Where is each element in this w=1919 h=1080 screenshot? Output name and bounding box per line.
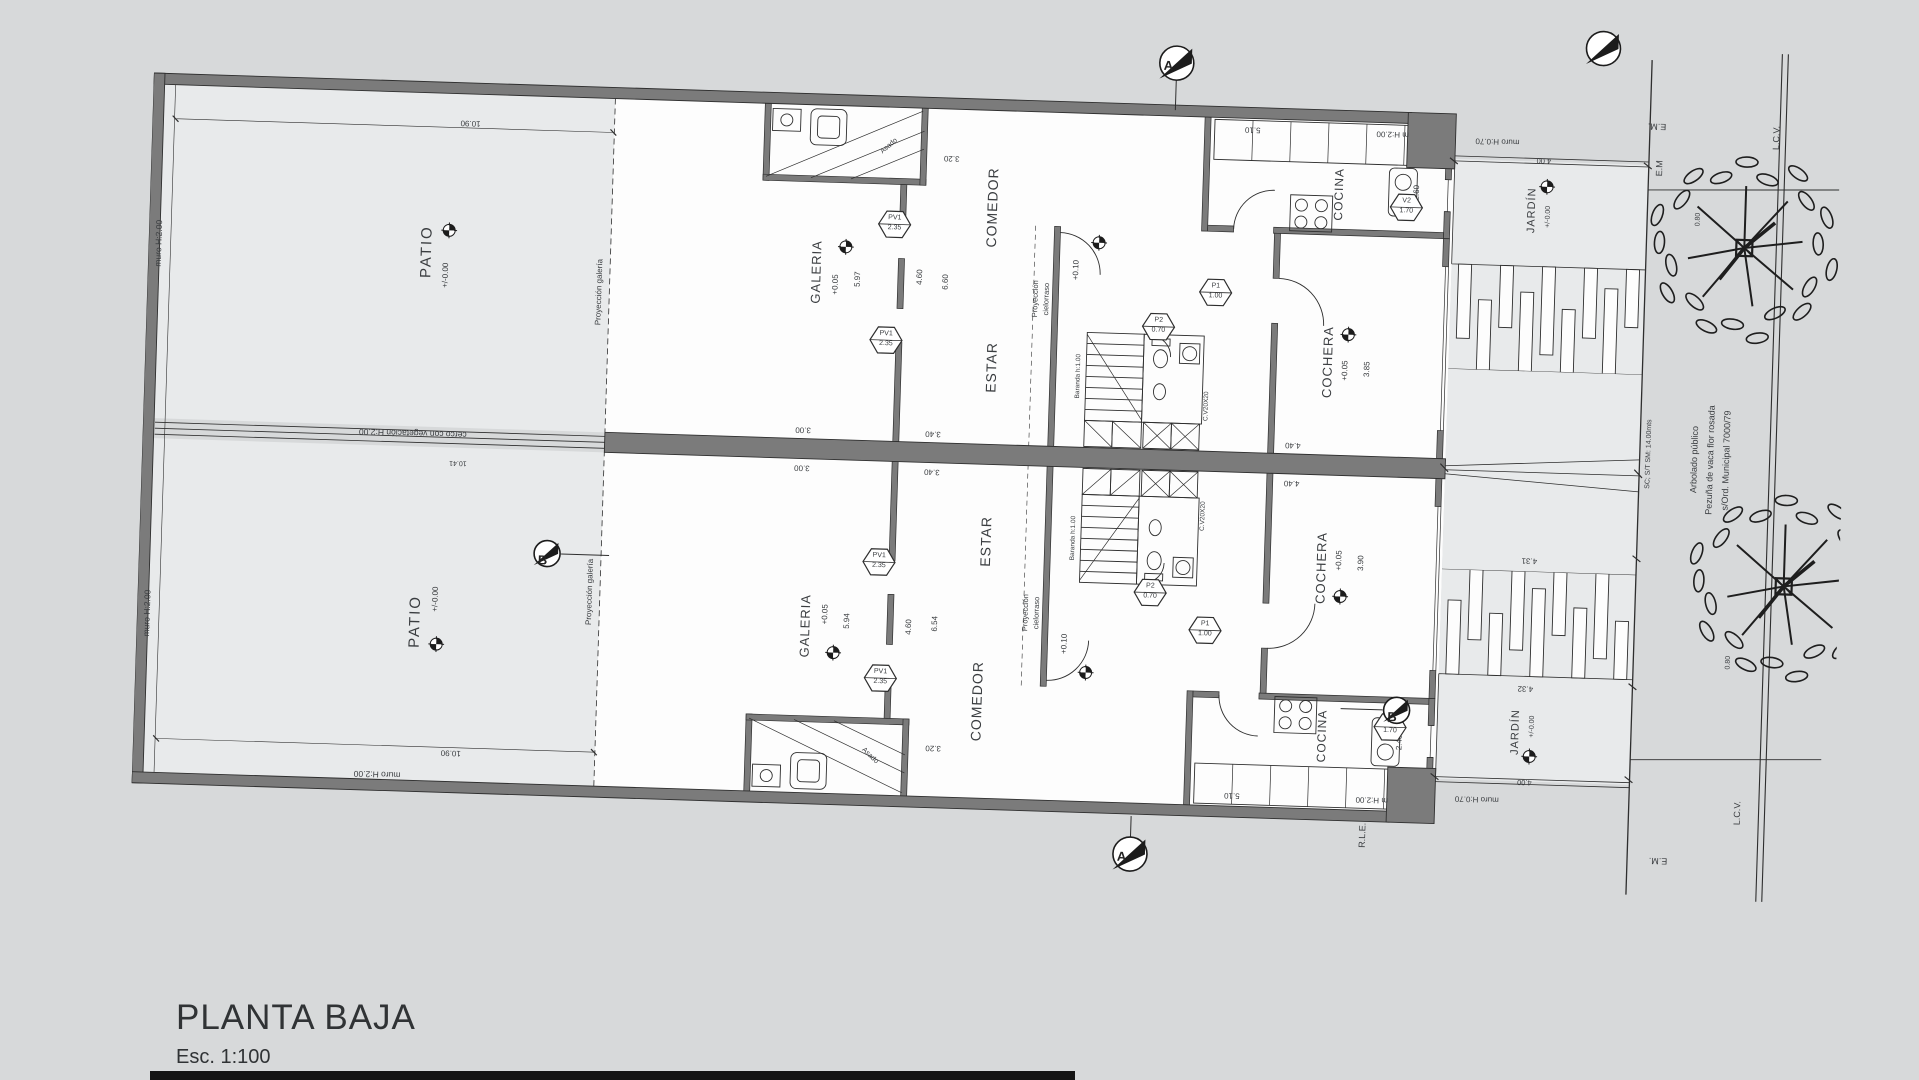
- room-label-comedor-a: COMEDOR: [984, 167, 1001, 248]
- note-vent-duct-b: C.V20X20: [1200, 501, 1207, 531]
- drawing-scale: Esc. 1:100: [176, 1046, 416, 1069]
- dim-cochera-a: 3.85: [1363, 361, 1371, 377]
- dim-galeria-b: 5.94: [843, 613, 851, 629]
- wall-note-left-a: muro H:2.00: [154, 220, 164, 267]
- level-text-galeria-b: +0.05: [821, 604, 830, 624]
- level-icon-cielorraso-b: [1077, 664, 1093, 680]
- note-arbolado-3: s/Ord. Municipal 7000/79: [1721, 410, 1733, 510]
- page-title: PLANTA BAJA: [176, 998, 416, 1038]
- north-arrow: [1584, 29, 1623, 68]
- note-em-top-1: E.M.: [1648, 121, 1667, 131]
- level-icon-galeria-a: [838, 239, 854, 255]
- dim-patio-a: 10.90: [460, 119, 480, 128]
- plan-annotations: PATIO+/-0.00muro H:2.0010.90Proyección g…: [129, 73, 1853, 926]
- room-label-cochera-a: COCHERA: [1320, 326, 1335, 398]
- level-icon-cielorraso-a: [1091, 235, 1107, 251]
- level-icon-patio-b: [428, 636, 444, 652]
- section-marker-a-top: A: [1157, 44, 1196, 83]
- level-icon-cochera-b: [1332, 588, 1348, 604]
- level-text-jardin-b: +/-0.00: [1528, 716, 1536, 738]
- dim-jardin-b: 4.00: [1517, 778, 1532, 786]
- dim-galeria-depth-b: 4.60: [905, 619, 913, 635]
- level-text-cochera-b: +0.05: [1335, 550, 1344, 570]
- note-arbolado-1: Arbolado público: [1689, 426, 1700, 493]
- dim-3-00-b: 3.00: [794, 463, 810, 471]
- dim-comedor-window-a: 3.20: [944, 154, 960, 162]
- dim-comedor-window-b: 3.20: [925, 744, 941, 752]
- room-label-comedor-b: COMEDOR: [968, 661, 985, 742]
- level-icon-cochera-a: [1340, 326, 1356, 342]
- dim-estar-depth-b: 6.54: [931, 616, 939, 632]
- note-lcv-top: L.C.V.: [1772, 126, 1782, 150]
- note-asado-a: Asado: [879, 137, 899, 155]
- note-proyeccion-galeria-a: Proyección galería: [594, 259, 604, 325]
- level-text-jardin-a: +/-0.00: [1544, 206, 1552, 228]
- room-label-galeria-b: GALERIA: [797, 594, 812, 658]
- room-label-estar-a: ESTAR: [983, 342, 999, 393]
- wall-note-bottom: muro H:2.00: [354, 769, 401, 779]
- tag-p1-b: P11.00: [1188, 616, 1223, 645]
- level-icon-patio-a: [441, 222, 457, 238]
- floor-plan-drawing: PATIO+/-0.00muro H:2.0010.90Proyección g…: [129, 73, 1853, 926]
- note-em-bottom: E.M.: [1649, 856, 1668, 866]
- note-proyeccion-cielorraso-a2: cielorraso: [1042, 283, 1051, 316]
- tag-p2-b: P20.70: [1133, 578, 1168, 607]
- level-icon-galeria-b: [825, 644, 841, 660]
- dim-galeria-depth-a: 4.60: [916, 269, 924, 285]
- dim-estar-depth-a: 6.60: [942, 274, 950, 290]
- room-label-cocina-a: COCINA: [1332, 168, 1346, 221]
- dim-cochera-b: 3.90: [1357, 555, 1365, 571]
- dim-front-b: 4.32: [1517, 684, 1533, 692]
- wall-note-left-b: muro H:2.00: [142, 590, 152, 637]
- dim-cerco: 10.41: [449, 459, 467, 467]
- note-proyeccion-cielorraso-b1: Proyección: [1021, 594, 1030, 631]
- wall-note-front-b1: m H:2.00: [1355, 795, 1388, 804]
- room-label-cocina-b: COCINA: [1315, 709, 1329, 762]
- level-icon-jardin-b: [1521, 748, 1537, 764]
- dim-3-00-a: 3.00: [795, 425, 811, 433]
- note-proyeccion-cielorraso-b2: cielorraso: [1032, 597, 1041, 630]
- dim-patio-b: 10.90: [441, 748, 461, 757]
- dim-tree-a: 0.80: [1694, 213, 1701, 227]
- note-rle: R.L.E.: [1358, 823, 1368, 848]
- dim-galeria-a: 5.97: [854, 271, 862, 287]
- note-vent-duct-a: C.V20X20: [1203, 391, 1210, 421]
- tag-p1-a: P11.00: [1198, 278, 1233, 307]
- title-block: PLANTA BAJA Esc. 1:100: [176, 998, 416, 1069]
- wall-note-front-b2: muro H:0.70: [1455, 794, 1499, 803]
- level-icon-jardin-a: [1539, 179, 1555, 195]
- note-proyeccion-cielorraso-a1: Proyección: [1031, 280, 1040, 317]
- wall-note-front-a1: m H:2.00: [1376, 129, 1409, 138]
- section-marker-b-left: B: [532, 538, 563, 569]
- level-text-cochera-a: +0.05: [1341, 360, 1350, 380]
- section-marker-b-right: B: [1381, 695, 1412, 726]
- note-lcv-bottom: L.C.V.: [1733, 801, 1743, 825]
- note-asado-b: Asado: [860, 746, 879, 765]
- cropped-next-drawing-edge: [150, 1071, 1075, 1080]
- tag-pv1-b2: PV12.35: [862, 547, 897, 576]
- note-sidewalk: SC; S/T SM: 14.00mts: [1644, 419, 1653, 489]
- note-arbolado-2: Pezuña de vaca flor rosada: [1704, 405, 1716, 515]
- note-em-top-2: E.M: [1655, 160, 1664, 176]
- room-label-patio-a: PATIO: [418, 225, 435, 278]
- note-baranda-a: Baranda h:1.00: [1075, 354, 1083, 399]
- dim-4-40-a: 4.40: [1285, 441, 1301, 449]
- dim-cocina-top-a: 5.10: [1245, 125, 1261, 133]
- tag-p2-a: P20.70: [1141, 312, 1176, 341]
- room-label-jardin-a: JARDÍN: [1526, 187, 1538, 233]
- room-label-estar-b: ESTAR: [978, 516, 994, 567]
- level-text-patio-b: +/-0.00: [431, 586, 440, 611]
- dim-tree-b: 0.80: [1725, 656, 1732, 670]
- room-label-patio-b: PATIO: [407, 595, 424, 648]
- dim-front-a: 4.31: [1521, 556, 1537, 564]
- level-text-cielorraso-a: +0.10: [1072, 260, 1081, 280]
- level-text-cielorraso-b: +0.10: [1060, 634, 1069, 654]
- tag-v2-a: V21.70: [1389, 193, 1424, 222]
- dim-jardin-a: 4.00: [1537, 157, 1552, 165]
- wall-note-front-a2: muro H:0.70: [1475, 137, 1519, 146]
- room-label-cochera-b: COCHERA: [1313, 532, 1328, 604]
- note-proyeccion-galeria-b: Proyección galería: [585, 559, 595, 625]
- dim-4-40-b: 4.40: [1284, 479, 1300, 487]
- tag-pv1-a2: PV12.35: [869, 326, 904, 355]
- note-cerco: cerco con vegetación H:2.00: [359, 427, 467, 439]
- dim-3-40-a: 3.40: [925, 429, 941, 437]
- room-label-galeria-a: GALERIA: [809, 240, 824, 304]
- tag-pv1-a1: PV12.35: [877, 210, 912, 239]
- room-label-jardin-b: JARDÍN: [1510, 709, 1522, 755]
- section-marker-a-bottom: A: [1110, 834, 1149, 873]
- note-baranda-b: Baranda h:1.00: [1070, 516, 1078, 561]
- dim-cocina-bottom-b: 5.10: [1224, 791, 1240, 799]
- tag-pv1-b1: PV12.35: [863, 664, 898, 693]
- level-text-patio-a: +/-0.00: [441, 263, 450, 288]
- dim-3-40-b: 3.40: [924, 467, 940, 475]
- level-text-galeria-a: +0.05: [831, 274, 840, 294]
